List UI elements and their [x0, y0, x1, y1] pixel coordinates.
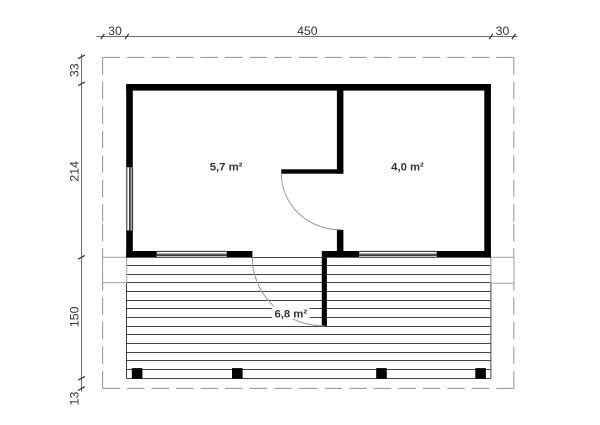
svg-text:150: 150 — [68, 306, 82, 327]
svg-text:4,0 m²: 4,0 m² — [391, 161, 424, 173]
svg-text:30: 30 — [496, 24, 510, 38]
svg-text:450: 450 — [297, 24, 318, 38]
svg-text:6,8 m²: 6,8 m² — [274, 309, 307, 321]
svg-text:214: 214 — [68, 161, 82, 182]
svg-text:13: 13 — [68, 392, 82, 406]
svg-text:5,7 m²: 5,7 m² — [210, 161, 243, 173]
svg-text:30: 30 — [108, 24, 122, 38]
svg-text:33: 33 — [68, 63, 82, 77]
